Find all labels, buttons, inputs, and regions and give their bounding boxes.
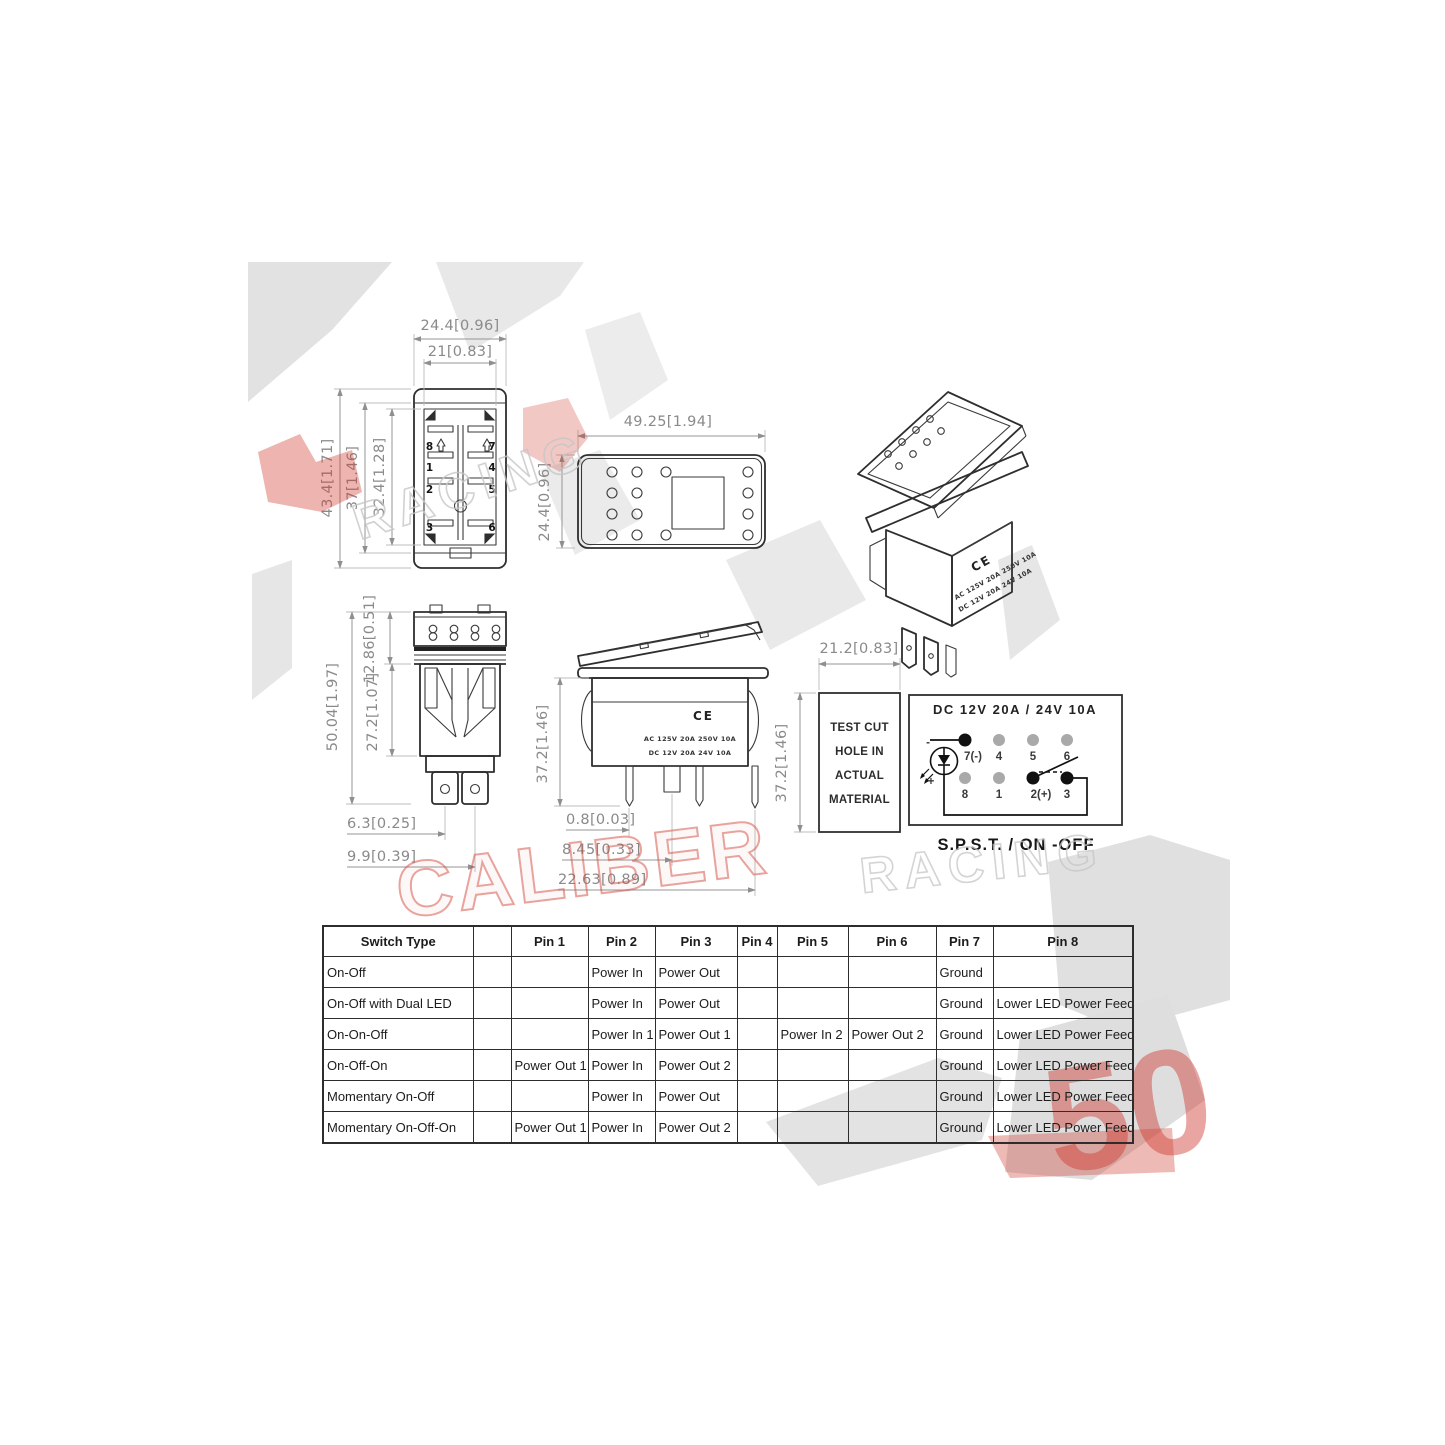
table-row: Momentary On-Off Power In Power Out Grou… (323, 1081, 1133, 1112)
cell (848, 1050, 936, 1081)
pin-dot-7 (959, 734, 972, 747)
header-cell: Pin 7 (936, 926, 993, 957)
cell: Ground (936, 1081, 993, 1112)
header-cell (473, 926, 511, 957)
cell: Power In (588, 1081, 655, 1112)
technical-drawing-page: 8 7 1 4 2 5 3 6 24.4[0.96] 21[0.83] 43.4… (0, 0, 1445, 1445)
dim-bottom-terminal: 12.86[0.51] (362, 595, 378, 683)
cell: Power Out (655, 957, 737, 988)
cell (473, 1019, 511, 1050)
clip-bottom-right (485, 534, 494, 543)
cell (848, 1081, 936, 1112)
dim-bottom-lug1: 6.3[0.25] (347, 816, 416, 832)
cell: Ground (936, 1019, 993, 1050)
iso-ce-mark: CE (969, 552, 994, 574)
cell: Power In (588, 957, 655, 988)
wiring-pin5-label: 5 (1030, 751, 1037, 763)
cell: Lower LED Power Feed (993, 1019, 1133, 1050)
cell: Power Out 1 (511, 1112, 588, 1144)
side-view: CE AC 125V 20A 250V 10A DC 12V 20A 24V 1… (578, 622, 768, 808)
arrow-up-icon (437, 439, 445, 451)
cell: Power Out 2 (655, 1050, 737, 1081)
cell (511, 957, 588, 988)
pin-dot-5 (1027, 734, 1039, 746)
bottom-view (414, 605, 506, 804)
cell: On-On-Off (323, 1019, 473, 1050)
header-cell: Pin 5 (777, 926, 848, 957)
test-cut-hole-box: TEST CUT HOLE IN ACTUAL MATERIAL 21.2[0.… (774, 641, 900, 832)
cell: Power In 2 (777, 1019, 848, 1050)
cell (473, 988, 511, 1019)
wiring-pin3-label: 3 (1064, 789, 1070, 801)
side-ce-mark: CE (693, 709, 714, 723)
side-marking-ac: AC 125V 20A 250V 10A (644, 735, 736, 743)
cell (777, 988, 848, 1019)
cell (473, 957, 511, 988)
header-cell: Pin 6 (848, 926, 936, 957)
cell: On-Off-On (323, 1050, 473, 1081)
wiring-pin8-label: 8 (962, 789, 969, 801)
table-row: On-Off with Dual LED Power In Power Out … (323, 988, 1133, 1019)
cell (777, 1050, 848, 1081)
cell: Power In (588, 988, 655, 1019)
cell (737, 1019, 777, 1050)
clip-top-right (485, 411, 494, 420)
table-row: Momentary On-Off-On Power Out 1 Power In… (323, 1112, 1133, 1144)
cell: Momentary On-Off-On (323, 1112, 473, 1144)
cell: Ground (936, 988, 993, 1019)
cell (473, 1050, 511, 1081)
wiring-minus: - (926, 737, 930, 749)
pin-dot-6 (1061, 734, 1073, 746)
cell: Power In (588, 1112, 655, 1144)
drawing-svg: 8 7 1 4 2 5 3 6 24.4[0.96] 21[0.83] 43.4… (0, 0, 1445, 1445)
dim-bottom-total: 50.04[1.97] (325, 663, 341, 751)
cell (777, 1081, 848, 1112)
table-header-row: Switch Type Pin 1 Pin 2 Pin 3 Pin 4 Pin … (323, 926, 1133, 957)
pin-dot-4 (993, 734, 1005, 746)
cell: Ground (936, 1050, 993, 1081)
front-pin-6: 6 (488, 522, 495, 534)
header-cell: Pin 8 (993, 926, 1133, 957)
cell: Power Out 2 (655, 1112, 737, 1144)
cell: On-Off with Dual LED (323, 988, 473, 1019)
cell (777, 957, 848, 988)
cell: Lower LED Power Feed (993, 1050, 1133, 1081)
dim-panel-width: 49.25[1.94] (624, 414, 712, 430)
cell (511, 1081, 588, 1112)
cell (848, 1112, 936, 1144)
cell (737, 1081, 777, 1112)
testcut-line2: HOLE IN (835, 746, 884, 758)
pin-dot-1 (993, 772, 1005, 784)
table-row: On-On-Off Power In 1 Power Out 1 Power I… (323, 1019, 1133, 1050)
cell: Power Out 1 (655, 1019, 737, 1050)
wiring-pin6-label: 6 (1064, 751, 1070, 763)
cell (993, 957, 1133, 988)
cell: Momentary On-Off (323, 1081, 473, 1112)
cell (777, 1112, 848, 1144)
testcut-line4: MATERIAL (829, 794, 890, 806)
cell (473, 1081, 511, 1112)
table-row: On-Off-On Power Out 1 Power In Power Out… (323, 1050, 1133, 1081)
cell: Lower LED Power Feed (993, 1081, 1133, 1112)
dim-bottom-body: 27.2[1.07] (365, 673, 381, 752)
header-cell: Pin 3 (655, 926, 737, 957)
testcut-line3: ACTUAL (835, 770, 884, 782)
header-cell: Switch Type (323, 926, 473, 957)
cell (737, 1112, 777, 1144)
dark-band (414, 647, 506, 651)
side-marking-dc: DC 12V 20A 24V 10A (649, 749, 732, 757)
cell: Power Out (655, 988, 737, 1019)
dim-side-height: 37.2[1.46] (535, 705, 551, 784)
pin-dot-3 (1061, 772, 1074, 785)
front-pin-8: 8 (426, 441, 433, 453)
clip-bottom-left (426, 534, 435, 543)
table-row: On-Off Power In Power Out Ground (323, 957, 1133, 988)
cell: Ground (936, 957, 993, 988)
dim-front-inner-width: 21[0.83] (428, 344, 492, 360)
dim-front-width: 24.4[0.96] (421, 318, 500, 334)
testcut-line1: TEST CUT (830, 722, 889, 734)
dim-testcut-width: 21.2[0.83] (820, 641, 899, 657)
cell: On-Off (323, 957, 473, 988)
cell: Power Out 2 (848, 1019, 936, 1050)
cell (511, 1019, 588, 1050)
pin-dot-2 (1027, 772, 1040, 785)
switch-type-pin-table: Switch Type Pin 1 Pin 2 Pin 3 Pin 4 Pin … (322, 925, 1134, 1144)
cell: Power In (588, 1050, 655, 1081)
dim-testcut-height: 37.2[1.46] (774, 724, 790, 803)
cell: Lower LED Power Feed (993, 988, 1133, 1019)
cell (737, 1050, 777, 1081)
cell (737, 988, 777, 1019)
cell: Power Out (655, 1081, 737, 1112)
wiring-pin1-label: 1 (996, 789, 1003, 801)
wiring-plus: + (928, 776, 935, 788)
wiring-pin4-label: 4 (996, 751, 1003, 763)
cell: Power Out 1 (511, 1050, 588, 1081)
clip-top-left (426, 411, 435, 420)
cell: Power In 1 (588, 1019, 655, 1050)
header-cell: Pin 4 (737, 926, 777, 957)
cell (737, 957, 777, 988)
cell (848, 988, 936, 1019)
header-cell: Pin 1 (511, 926, 588, 957)
wiring-pin2-label: 2(+) (1031, 789, 1052, 801)
wiring-title: DC 12V 20A / 24V 10A (933, 702, 1097, 717)
wiring-pin7-label: 7(-) (964, 751, 982, 763)
pin-dot-8 (959, 772, 971, 784)
cell (473, 1112, 511, 1144)
cell (511, 988, 588, 1019)
cell (848, 957, 936, 988)
cell: Ground (936, 1112, 993, 1144)
cell: Lower LED Power Feed (993, 1112, 1133, 1144)
header-cell: Pin 2 (588, 926, 655, 957)
